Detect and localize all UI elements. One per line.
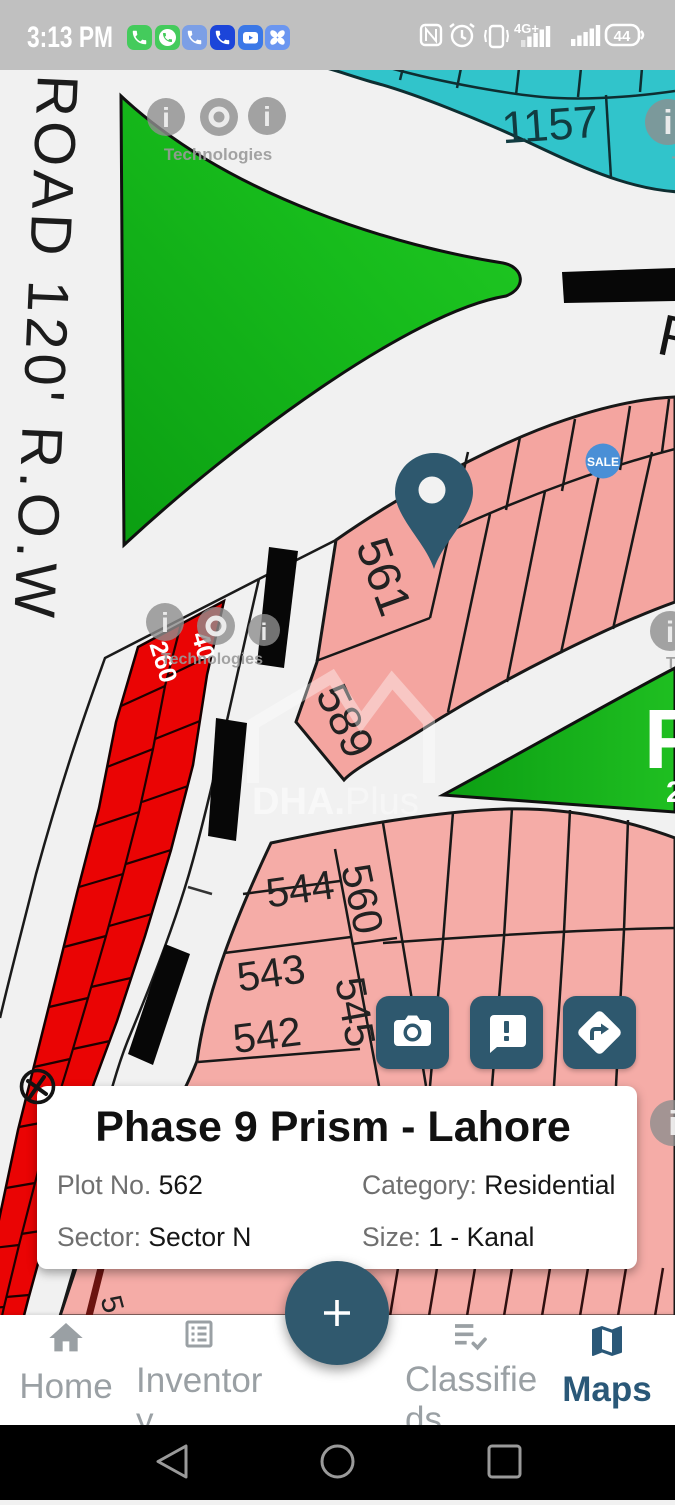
svg-text:i: i — [162, 102, 170, 133]
svg-text:3:13 PM: 3:13 PM — [27, 21, 113, 54]
svg-text:DHA.Plus: DHA.Plus — [252, 781, 419, 823]
svg-text:i: i — [261, 619, 268, 646]
svg-text:1157: 1157 — [500, 96, 600, 154]
svg-text:542: 542 — [230, 1008, 304, 1062]
svg-text:544: 544 — [263, 861, 337, 916]
svg-text:i: i — [668, 1105, 675, 1143]
svg-text:Technologies: Technologies — [164, 145, 272, 164]
svg-text:44: 44 — [614, 28, 631, 45]
svg-text:i: i — [663, 104, 672, 142]
svg-text:P: P — [644, 692, 675, 786]
svg-text:543: 543 — [234, 945, 308, 1000]
svg-text:2: 2 — [666, 776, 675, 809]
svg-text:i: i — [263, 101, 271, 132]
svg-text:T: T — [666, 655, 675, 672]
svg-text:SALE: SALE — [587, 455, 619, 469]
svg-text:i: i — [161, 607, 169, 638]
svg-text:Technologies: Technologies — [161, 651, 263, 668]
svg-text:i: i — [666, 616, 674, 649]
